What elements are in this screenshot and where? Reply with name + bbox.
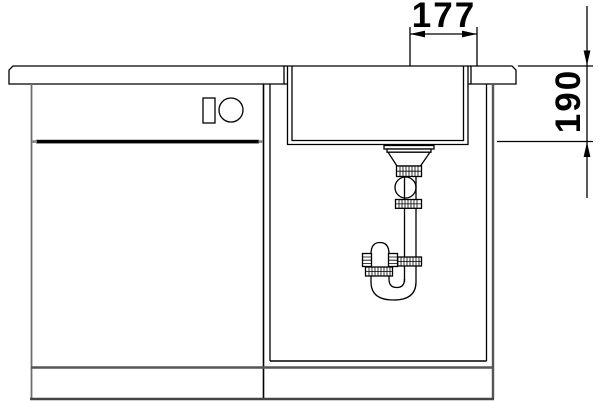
strainer-locknut	[397, 166, 422, 177]
sink-basin	[284, 66, 471, 145]
drawer-divider-rail	[36, 140, 259, 144]
trap-stub-dome	[371, 243, 389, 255]
dim-right-arrowhead-bottom	[584, 142, 591, 157]
dim-right-arrowhead-top	[584, 51, 591, 66]
pipe-coupling-lower	[395, 257, 422, 266]
countertop-left-slab	[9, 66, 284, 84]
drawer-rail-end-right	[259, 140, 264, 143]
pipe-coupling-upper	[396, 200, 422, 209]
front-panel-controls	[203, 98, 243, 123]
sink-cabinet	[270, 84, 493, 399]
stub-compression-wings	[363, 254, 398, 267]
left-cabinet	[32, 84, 264, 399]
trap-swivel-ring	[395, 177, 416, 198]
basin-inner-shell	[292, 66, 464, 141]
basin-outer-shell	[288, 66, 469, 145]
control-switch	[203, 98, 215, 123]
dimension-top-width: 177	[410, 0, 477, 66]
dimension-top-label: 177	[412, 0, 476, 35]
drawing-canvas: 177 190	[0, 0, 600, 401]
plinth-base	[30, 368, 494, 400]
dimension-right-depth: 190	[497, 6, 593, 198]
drawer-rail-end-left	[33, 140, 38, 143]
stub-coupling-band	[366, 267, 393, 276]
sink-installation-drawing: 177 190	[0, 0, 600, 401]
drain-assembly	[363, 146, 435, 301]
countertop-right-slab	[471, 66, 516, 84]
strainer-cup	[388, 152, 430, 166]
control-knob	[219, 98, 243, 122]
countertop	[9, 66, 516, 84]
dimension-right-label: 190	[549, 69, 588, 133]
